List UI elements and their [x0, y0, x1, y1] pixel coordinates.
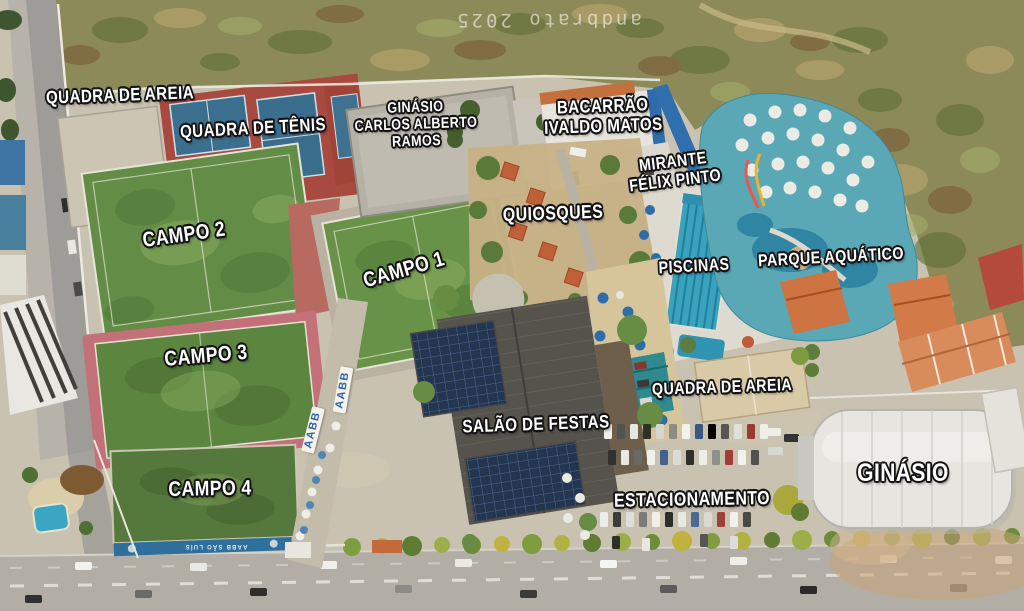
- stand-text: AABB SÃO LUÍS: [185, 543, 248, 549]
- label-piscinas: PISCINAS: [658, 255, 730, 278]
- aerial-photo: andbrato 2025 AABB AABB AABB SÃO LUÍS QU…: [0, 0, 1024, 611]
- label-campo-4: CAMPO 4: [168, 477, 252, 502]
- label-ginasio: GINÁSIO: [857, 459, 949, 487]
- label-line: ESTACIONAMENTO: [614, 488, 770, 512]
- label-line: GINÁSIO: [857, 459, 949, 487]
- label-estacionamento: ESTACIONAMENTO: [614, 488, 770, 512]
- entrance-gate: [285, 542, 311, 558]
- label-bacarrao-ivaldo-matos: BACARRÃO IVALDO MATOS: [543, 94, 663, 138]
- label-quiosques: QUIOSQUES: [502, 202, 603, 227]
- label-line: IVALDO MATOS: [544, 114, 663, 138]
- label-ginasio-carlos-alberto-ramos: GINÁSIO CARLOS ALBERTO RAMOS: [354, 98, 478, 153]
- label-line: CAMPO 4: [168, 477, 252, 502]
- label-line: QUIOSQUES: [502, 202, 603, 227]
- watermark-text: andbrato 2025: [454, 9, 642, 31]
- gate-house-roof: [372, 540, 402, 553]
- label-line: PISCINAS: [658, 255, 730, 278]
